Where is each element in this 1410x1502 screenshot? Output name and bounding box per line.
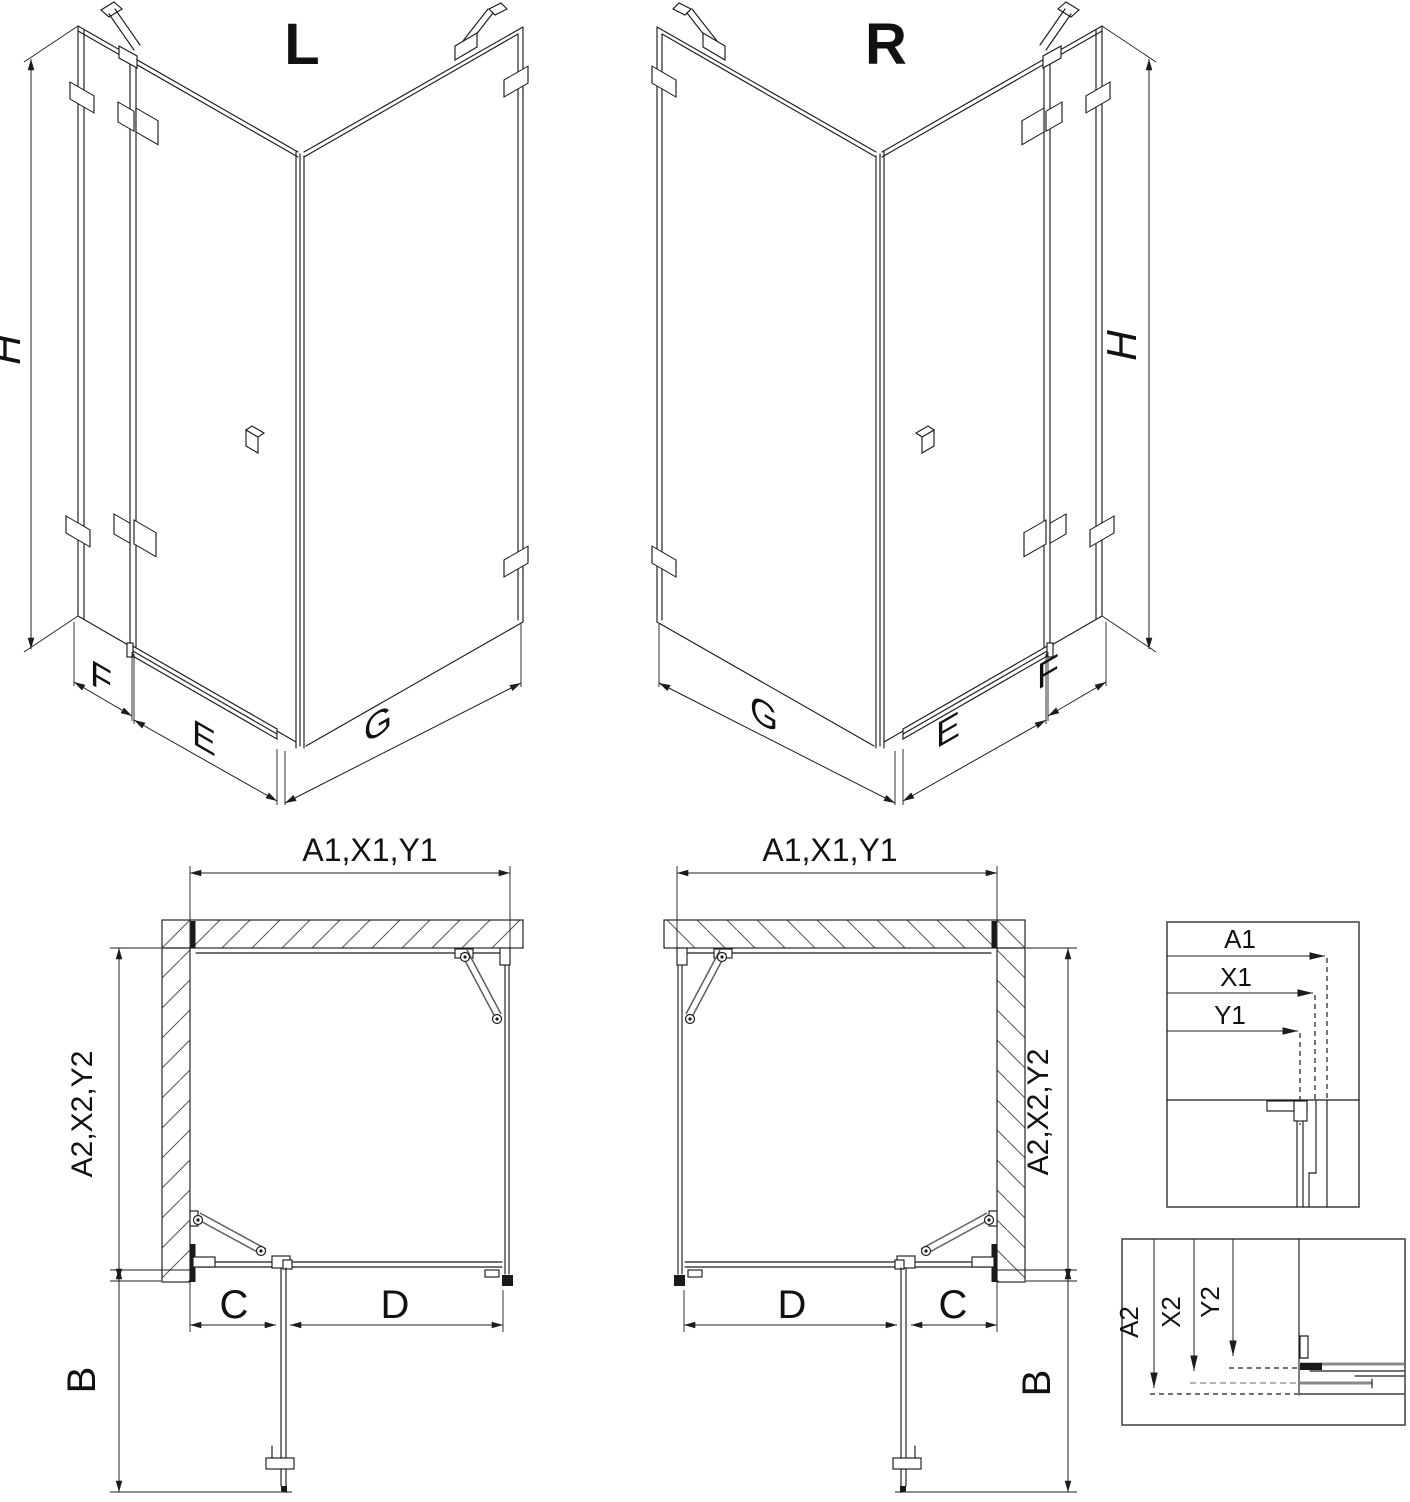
detail-depth-a2: A2 (1114, 1306, 1144, 1338)
detail-width-y1: Y1 (1214, 1000, 1246, 1030)
detail-depth-measure: A2 X2 Y2 (1114, 1239, 1405, 1425)
plan-swing-dim-right: B (1015, 1370, 1059, 1397)
wall-panel-dim-label-right: G (750, 686, 778, 742)
plan-view-left: A1,X1,Y1 A2,X2,Y2 B C D (60, 832, 523, 1493)
plan-fixed-dim-right: C (939, 1283, 968, 1327)
door-dim-label-left: E (192, 712, 216, 766)
side-panel-dim-label-left: F (90, 652, 112, 705)
plan-width-dim-right: A1,X1,Y1 (762, 832, 897, 868)
plan-width-dim-left: A1,X1,Y1 (302, 832, 437, 868)
detail-width-measure: A1 X1 Y1 (1167, 922, 1359, 1207)
variant-label-right: R (865, 12, 907, 77)
detail-width-a1: A1 (1224, 924, 1256, 954)
plan-fixed-dim-left: C (220, 1283, 249, 1327)
iso-view-left: L H F E G (0, 2, 528, 805)
plan-depth-dim-right: A2,X2,Y2 (1022, 1049, 1055, 1176)
wall-panel-dim-label-left: G (364, 696, 392, 752)
plan-swing-dim-left: B (60, 1367, 104, 1394)
height-dim-label-left: H (0, 329, 29, 369)
shower-enclosure-diagram: L H F E G R H G E F A1,X1,Y1 A2,X2,Y2 B … (0, 0, 1410, 1502)
plan-door-dim-left: D (381, 1283, 410, 1327)
variant-label-left: L (284, 12, 319, 77)
iso-view-right: R H G E F (652, 2, 1156, 805)
technical-drawing-sheet: L H F E G R H G E F A1,X1,Y1 A2,X2,Y2 B … (0, 0, 1410, 1502)
detail-depth-x2: X2 (1156, 1296, 1186, 1328)
plan-door-dim-right: D (778, 1283, 807, 1327)
plan-view-right: A1,X1,Y1 A2,X2,Y2 B D C (664, 832, 1077, 1493)
height-dim-label-right: H (1098, 325, 1144, 365)
plan-depth-dim-left: A2,X2,Y2 (66, 1051, 99, 1178)
detail-depth-y2: Y2 (1195, 1286, 1225, 1318)
detail-width-x1: X1 (1220, 962, 1252, 992)
